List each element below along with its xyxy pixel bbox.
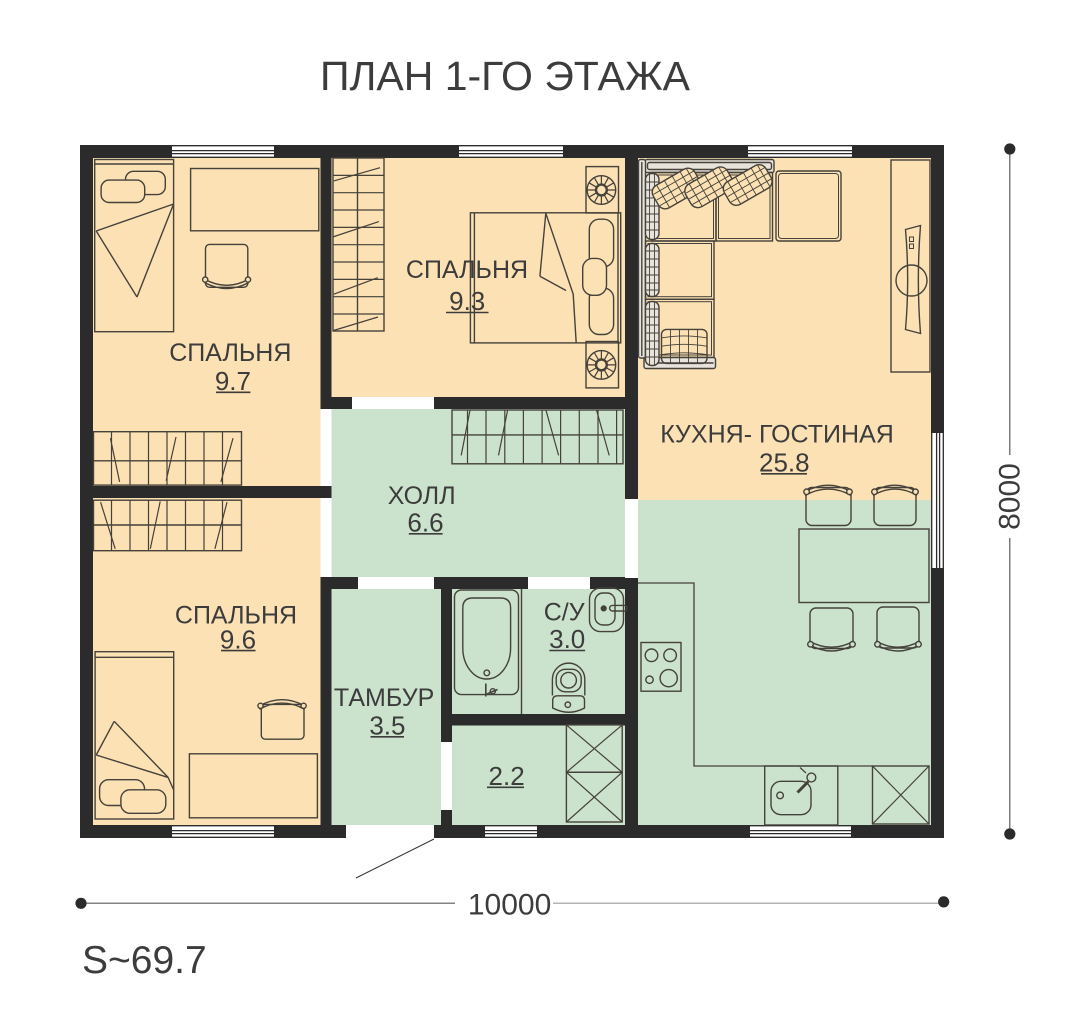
svg-text:ХОЛЛ: ХОЛЛ	[388, 482, 456, 510]
svg-text:СПАЛЬНЯ: СПАЛЬНЯ	[169, 339, 291, 367]
svg-text:С/У: С/У	[544, 599, 585, 627]
svg-text:ПЛАН 1-ГО ЭТАЖА: ПЛАН 1-ГО ЭТАЖА	[320, 53, 691, 99]
svg-text:СПАЛЬНЯ: СПАЛЬНЯ	[406, 256, 528, 284]
svg-text:S~69.7: S~69.7	[82, 939, 207, 982]
svg-text:8000: 8000	[994, 463, 1027, 530]
svg-text:10000: 10000	[468, 889, 551, 922]
svg-text:ТАМБУР: ТАМБУР	[334, 684, 434, 712]
svg-text:9.3: 9.3	[449, 286, 485, 316]
svg-text:КУХНЯ- ГОСТИНАЯ: КУХНЯ- ГОСТИНАЯ	[660, 421, 894, 449]
